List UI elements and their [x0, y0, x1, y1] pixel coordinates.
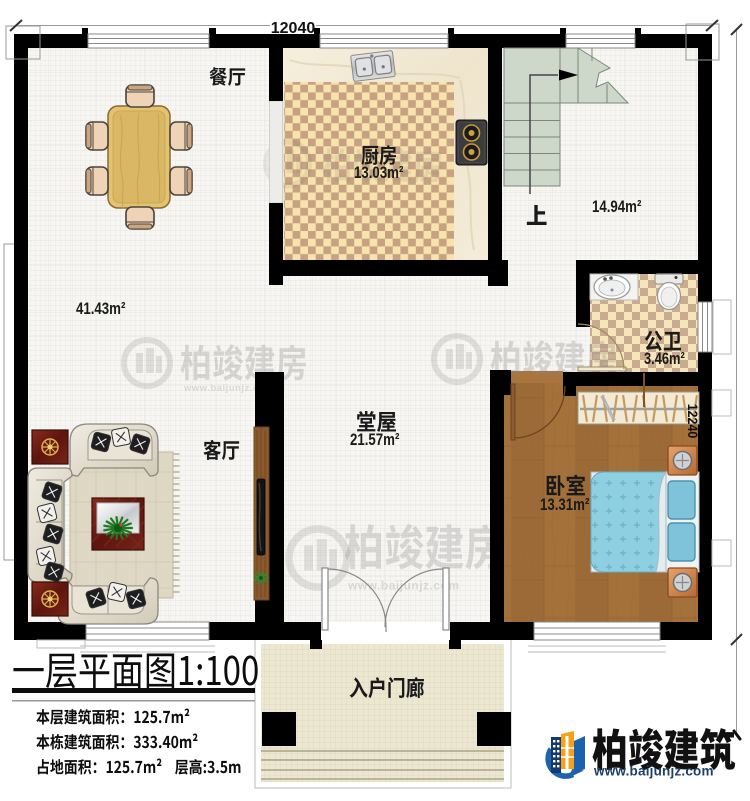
svg-text:41.43m²: 41.43m² — [76, 300, 125, 319]
svg-text:13.31m²: 13.31m² — [540, 496, 589, 515]
svg-text:12040: 12040 — [271, 20, 316, 37]
svg-text:3.46m²: 3.46m² — [644, 351, 685, 369]
svg-text:14.94m²: 14.94m² — [592, 198, 641, 217]
svg-text:12240: 12240 — [685, 404, 701, 439]
svg-text:www.baijunjz.com: www.baijunjz.com — [593, 764, 714, 779]
svg-text:21.57m²: 21.57m² — [350, 431, 399, 450]
svg-text:13.03m²: 13.03m² — [354, 164, 403, 183]
